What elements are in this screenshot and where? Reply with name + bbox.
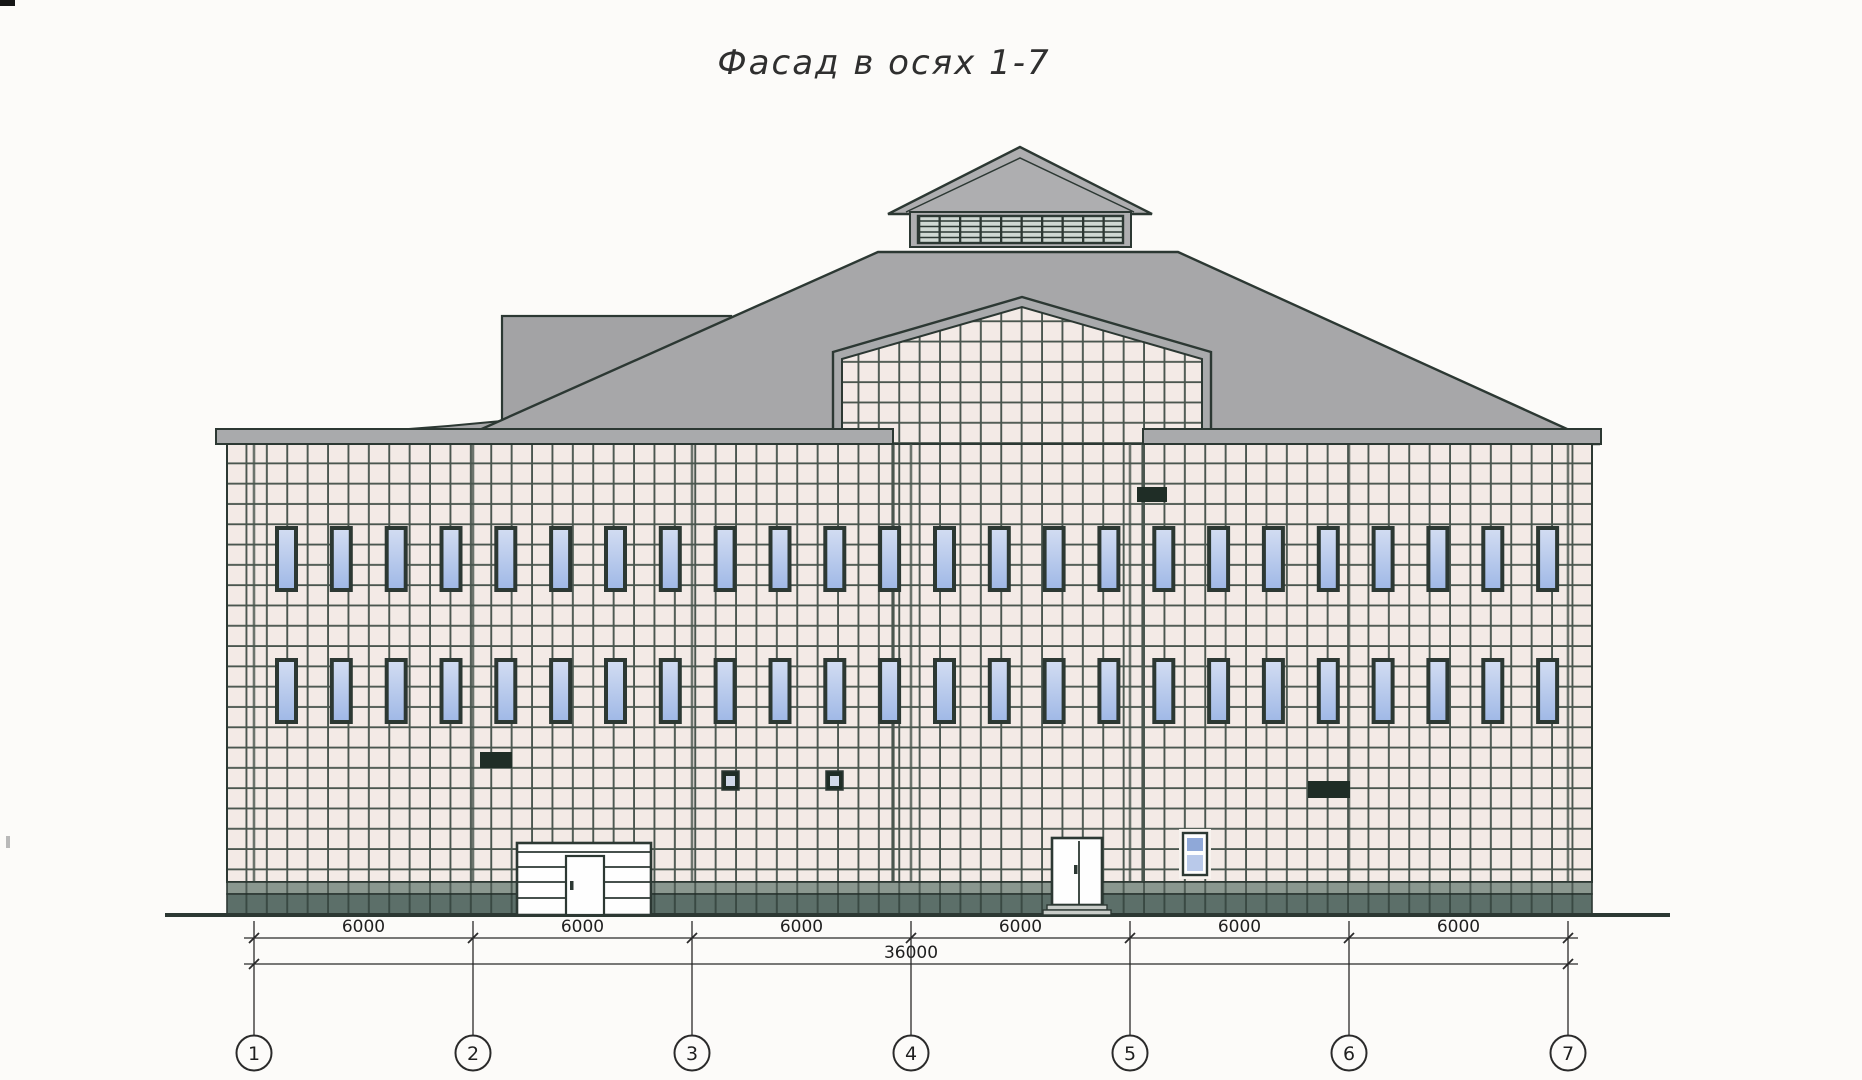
- facade-elevation-drawing: Фасад в осях 1-7: [0, 0, 1862, 1080]
- facade-window: [1319, 528, 1338, 590]
- facade-window: [1483, 660, 1502, 722]
- facade-window: [990, 660, 1009, 722]
- small-vent-window: [826, 771, 843, 790]
- lantern-louver-vent: [918, 216, 1123, 243]
- facade-window: [442, 660, 461, 722]
- facade-window: [935, 528, 954, 590]
- facade-window: [1264, 660, 1283, 722]
- bay-dimension-label: 6000: [1437, 917, 1480, 937]
- bay-dimension-label: 6000: [342, 917, 385, 937]
- cornice-left: [216, 429, 893, 444]
- dimension-group: 36000 1234567600060006000600060006000: [237, 917, 1586, 1071]
- facade-window: [496, 528, 515, 590]
- door-handle: [1074, 865, 1078, 874]
- axis-number: 1: [248, 1043, 260, 1065]
- facade-window: [771, 660, 790, 722]
- facade-window: [661, 660, 680, 722]
- door-step: [1043, 910, 1111, 915]
- facade-window: [1428, 660, 1447, 722]
- facade-window: [1045, 660, 1064, 722]
- cornice-right: [1143, 429, 1601, 444]
- facade-window: [880, 528, 899, 590]
- facade-window: [1538, 660, 1557, 722]
- axis-number: 2: [467, 1043, 479, 1065]
- plinth-joints: [227, 882, 1592, 915]
- bay-dimension-label: 6000: [780, 917, 823, 937]
- facade-window: [716, 528, 735, 590]
- facade-window: [606, 528, 625, 590]
- garage-door: [517, 843, 651, 915]
- facade-window: [1099, 660, 1118, 722]
- facade-window: [387, 528, 406, 590]
- facade-window: [1045, 528, 1064, 590]
- scan-artifact: [0, 0, 15, 6]
- facade-window: [1374, 660, 1393, 722]
- facade-window: [1154, 660, 1173, 722]
- facade-window: [1264, 528, 1283, 590]
- facade-window: [661, 528, 680, 590]
- facade-window: [825, 660, 844, 722]
- facade-window: [551, 528, 570, 590]
- bay-dimension-label: 6000: [1218, 917, 1261, 937]
- bay-dimension-label: 6000: [561, 917, 604, 937]
- cupola-roof: [888, 147, 1152, 214]
- facade-window: [990, 528, 1009, 590]
- facade-window: [496, 660, 515, 722]
- facade-window: [442, 528, 461, 590]
- axis-number: 6: [1343, 1043, 1355, 1065]
- bay-dimension-label: 6000: [999, 917, 1042, 937]
- facade-window: [1209, 528, 1228, 590]
- facade-window: [1099, 528, 1118, 590]
- facade-window: [277, 660, 296, 722]
- facade-window: [1154, 528, 1173, 590]
- scan-artifact: [6, 836, 10, 848]
- facade-window: [935, 660, 954, 722]
- small-window: [1179, 829, 1211, 879]
- drawing-sheet: Фасад в осях 1-7: [0, 0, 1862, 1080]
- facade-window: [1374, 528, 1393, 590]
- facade-window: [332, 660, 351, 722]
- facade-window: [1428, 528, 1447, 590]
- axis-number: 4: [905, 1043, 917, 1065]
- facade-window: [771, 528, 790, 590]
- door-step: [1047, 905, 1107, 910]
- facade-window: [1483, 528, 1502, 590]
- door-handle: [570, 881, 574, 890]
- wall-vent: [1137, 487, 1167, 502]
- entrance-door: [1043, 838, 1111, 915]
- wall-vent: [480, 752, 512, 768]
- small-vent-window: [722, 771, 739, 790]
- facade-window: [825, 528, 844, 590]
- facade-window: [1538, 528, 1557, 590]
- facade-window: [277, 528, 296, 590]
- facade-window: [606, 660, 625, 722]
- facade-window: [551, 660, 570, 722]
- facade-window: [716, 660, 735, 722]
- axis-number: 3: [686, 1043, 698, 1065]
- facade-window: [1209, 660, 1228, 722]
- facade-window: [1319, 660, 1338, 722]
- axis-number: 5: [1124, 1043, 1136, 1065]
- wall-vent: [1308, 781, 1350, 798]
- facade-window: [332, 528, 351, 590]
- facade-window: [387, 660, 406, 722]
- facade-window: [880, 660, 899, 722]
- drawing-title: Фасад в осях 1-7: [717, 43, 1050, 83]
- axis-number: 7: [1562, 1043, 1574, 1065]
